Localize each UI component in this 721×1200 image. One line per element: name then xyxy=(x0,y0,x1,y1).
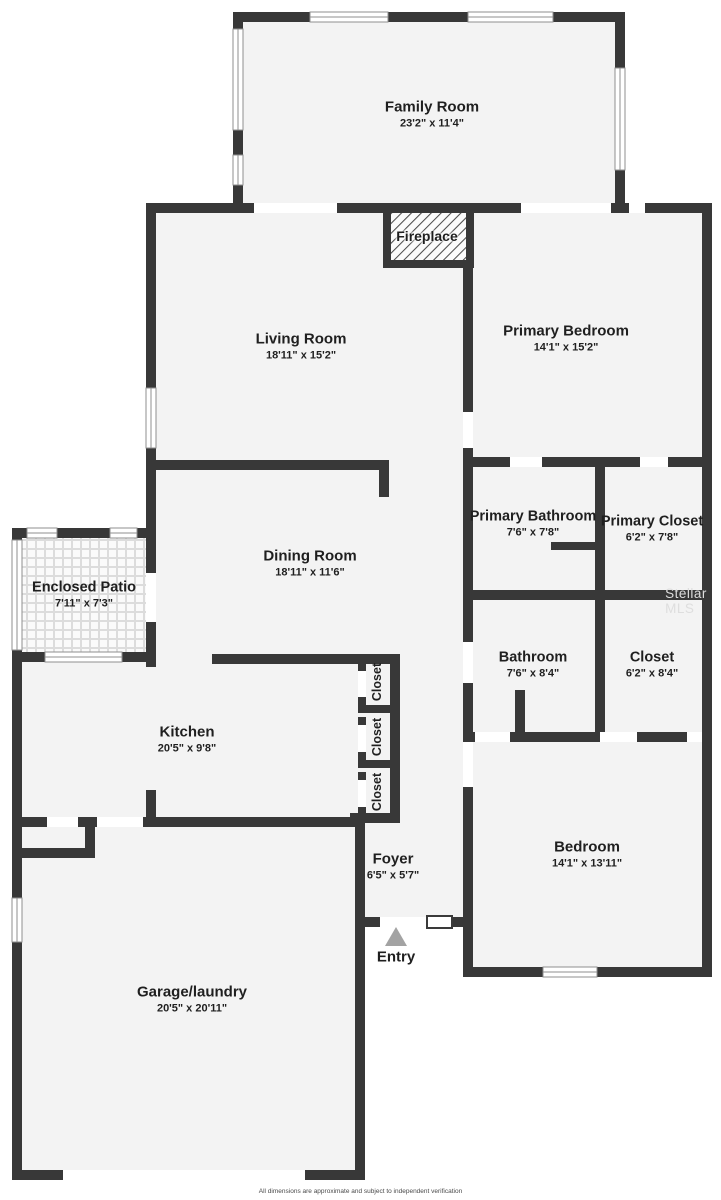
room-name: Primary Bathroom xyxy=(470,508,597,526)
room-label-fireplace: Fireplace xyxy=(396,228,457,244)
room-name: Dining Room xyxy=(263,548,356,566)
room-name: Kitchen xyxy=(158,724,216,742)
room-name: Family Room xyxy=(385,99,479,117)
room-label-closet-3: Closet xyxy=(370,773,384,811)
room-dims: 18'11" x 11'6" xyxy=(263,566,356,581)
room-dims: 23'2" x 11'4" xyxy=(385,117,479,132)
entry-arrow-icon xyxy=(385,927,407,946)
room-dims: 6'2" x 8'4" xyxy=(626,667,678,682)
room-name: Primary Closet xyxy=(601,513,703,531)
room-label-bathroom: Bathroom 7'6" x 8'4" xyxy=(499,649,567,682)
room-label-garage: Garage/laundry 20'5" x 20'11" xyxy=(137,984,247,1017)
room-name: Garage/laundry xyxy=(137,984,247,1002)
room-name: Primary Bedroom xyxy=(503,323,629,341)
room-label-bedroom: Bedroom 14'1" x 13'11" xyxy=(552,839,622,872)
room-label-foyer: Foyer 6'5" x 5'7" xyxy=(367,851,419,884)
disclaimer-text: All dimensions are approximate and subje… xyxy=(0,1188,721,1195)
entry-door xyxy=(427,916,452,928)
room-dims: 7'6" x 7'8" xyxy=(470,526,597,541)
room-name: Bathroom xyxy=(499,649,567,667)
room-label-closet-2: Closet xyxy=(370,718,384,756)
room-label-primary-bedroom: Primary Bedroom 14'1" x 15'2" xyxy=(503,323,629,356)
floor-plan-page: Family Room 23'2" x 11'4" Living Room 18… xyxy=(0,0,721,1200)
room-label-kitchen: Kitchen 20'5" x 9'8" xyxy=(158,724,216,757)
room-label-enclosed-patio: Enclosed Patio 7'11" x 7'3" xyxy=(32,579,136,612)
room-dims: 6'5" x 5'7" xyxy=(367,869,419,884)
room-label-closet: Closet 6'2" x 8'4" xyxy=(626,649,678,682)
room-dims: 7'6" x 8'4" xyxy=(499,667,567,682)
room-name: Foyer xyxy=(367,851,419,869)
room-label-closet-1: Closet xyxy=(370,663,384,701)
room-dims: 20'5" x 9'8" xyxy=(158,742,216,757)
room-dims: 20'5" x 20'11" xyxy=(137,1002,247,1017)
room-dims: 18'11" x 15'2" xyxy=(256,349,347,364)
room-dims: 14'1" x 13'11" xyxy=(552,857,622,872)
room-name: Bedroom xyxy=(552,839,622,857)
room-dims: 14'1" x 15'2" xyxy=(503,341,629,356)
room-label-primary-closet: Primary Closet 6'2" x 7'8" xyxy=(601,513,703,546)
entry-label: Entry xyxy=(377,949,415,966)
room-label-living-room: Living Room 18'11" x 15'2" xyxy=(256,331,347,364)
room-label-dining-room: Dining Room 18'11" x 11'6" xyxy=(263,548,356,581)
room-name: Closet xyxy=(626,649,678,667)
room-name: Living Room xyxy=(256,331,347,349)
room-name: Enclosed Patio xyxy=(32,579,136,597)
room-dims: 6'2" x 7'8" xyxy=(601,531,703,546)
room-dims: 7'11" x 7'3" xyxy=(32,597,136,612)
room-label-primary-bathroom: Primary Bathroom 7'6" x 7'8" xyxy=(470,508,597,541)
watermark-text: Stellar MLS xyxy=(665,586,707,616)
room-label-family-room: Family Room 23'2" x 11'4" xyxy=(385,99,479,132)
